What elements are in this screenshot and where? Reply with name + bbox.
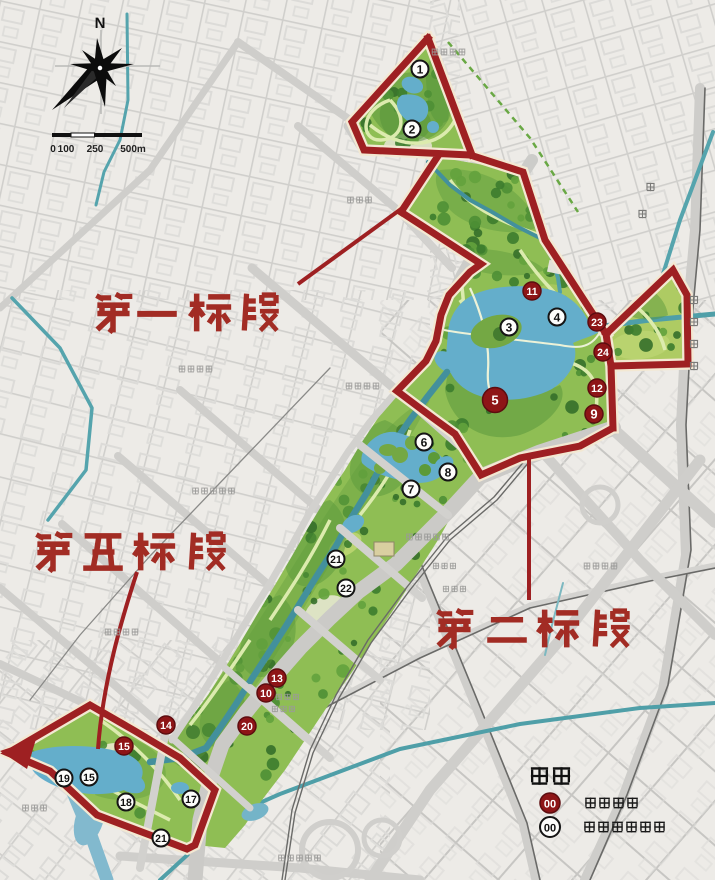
svg-text:10: 10: [260, 688, 272, 700]
svg-text:7: 7: [408, 482, 415, 496]
svg-text:23: 23: [591, 317, 603, 329]
svg-text:11: 11: [526, 286, 537, 298]
svg-text:13: 13: [271, 673, 283, 685]
svg-text:24: 24: [597, 347, 609, 359]
svg-text:3: 3: [506, 320, 513, 334]
svg-text:2: 2: [409, 122, 416, 136]
svg-text:8: 8: [445, 465, 452, 479]
svg-text:0: 0: [50, 144, 56, 155]
svg-text:12: 12: [591, 383, 603, 395]
svg-text:N: N: [95, 15, 106, 32]
svg-text:19: 19: [58, 773, 70, 785]
svg-text:6: 6: [421, 435, 428, 449]
svg-text:00: 00: [544, 799, 556, 811]
svg-text:14: 14: [160, 720, 172, 732]
svg-text:22: 22: [340, 583, 352, 595]
svg-text:1: 1: [417, 62, 424, 76]
svg-text:250: 250: [87, 144, 104, 155]
svg-text:17: 17: [185, 794, 197, 806]
svg-text:9: 9: [590, 407, 597, 422]
svg-text:15: 15: [83, 772, 95, 784]
svg-text:20: 20: [241, 721, 253, 733]
svg-text:00: 00: [544, 823, 556, 835]
svg-text:18: 18: [120, 797, 132, 809]
svg-text:15: 15: [118, 741, 130, 753]
svg-text:5: 5: [491, 393, 498, 408]
svg-text:500m: 500m: [120, 144, 146, 155]
svg-text:4: 4: [554, 310, 561, 324]
svg-text:21: 21: [155, 833, 167, 845]
svg-text:21: 21: [330, 554, 342, 566]
svg-text:100: 100: [58, 144, 75, 155]
